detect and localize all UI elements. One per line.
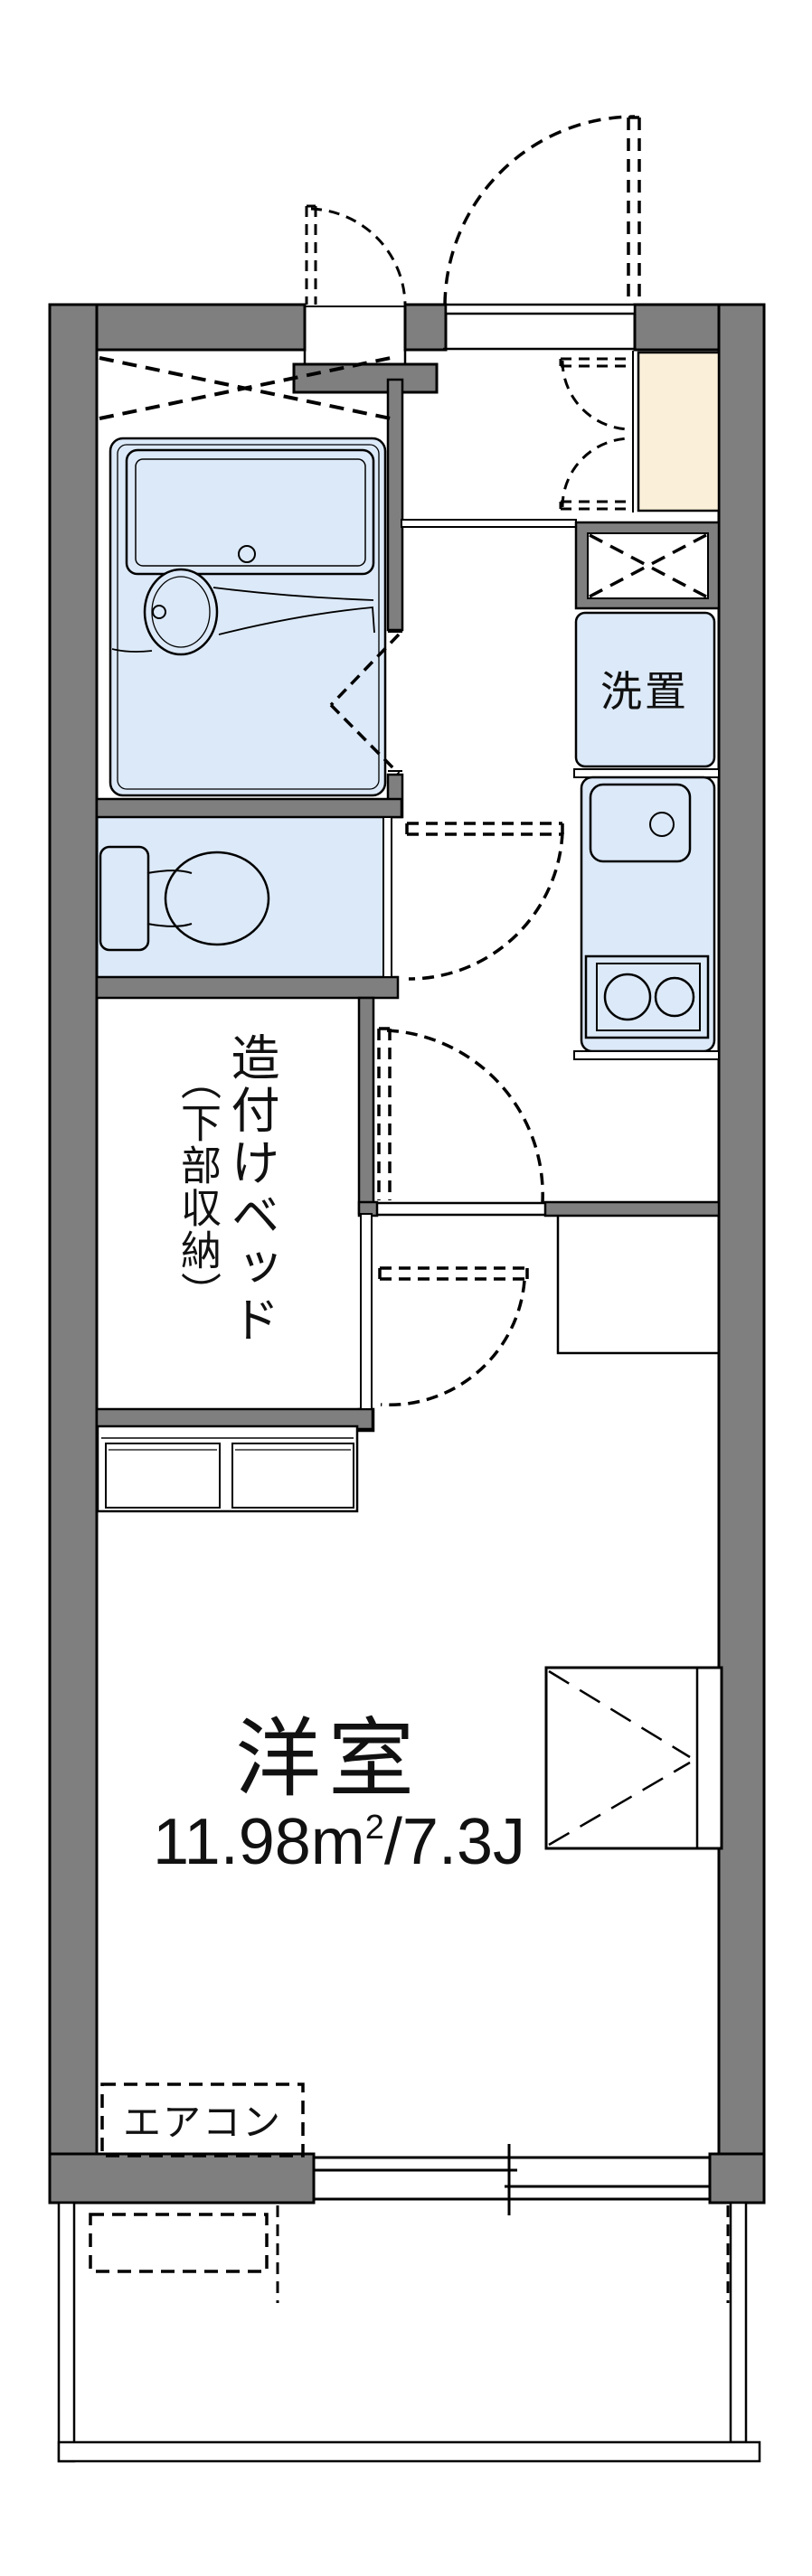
balcony-wall-right [731, 2203, 746, 2442]
meter-box-door [307, 206, 405, 305]
western-room-label: 洋室 [235, 1690, 421, 1814]
kitchen [574, 769, 719, 1059]
sliding-window [314, 2144, 710, 2215]
hanging-cupboard [576, 522, 719, 608]
western-room-area: 11.98m2/7.3J [153, 1805, 525, 1879]
toilet-bowl [165, 852, 269, 945]
partition-toilet-right [383, 817, 392, 977]
wall-bathroom-right [388, 380, 402, 630]
bathtub-drain [239, 546, 255, 562]
toilet [100, 847, 269, 950]
burner-left [605, 974, 650, 1020]
built-in-bed-sublabel: （下部収納） [177, 1059, 218, 1314]
washbasin [145, 569, 217, 654]
closet [546, 1668, 722, 1848]
wall-left [50, 305, 97, 2203]
kitchen-top-bar [574, 769, 719, 777]
balcony-wall-bottom [59, 2442, 760, 2461]
stove [586, 956, 708, 1038]
sink-drain [650, 813, 674, 836]
wall-bed-right [359, 998, 373, 1214]
kitchen-sink [590, 785, 690, 861]
wall-bottom-left [50, 2154, 314, 2203]
entrance-opening [446, 305, 635, 314]
partition-bed-right [361, 1214, 372, 1409]
entrance-door [445, 117, 639, 305]
wall-toilet-bottom [97, 977, 398, 998]
outdoor-unit-space [90, 2214, 267, 2271]
washbasin-faucet [153, 606, 165, 618]
genkan-step [401, 520, 576, 527]
bathtub [127, 450, 373, 574]
floor-plan-drawing [0, 0, 812, 2576]
floor-plan: 洗置 造付けベッド （下部収納） 洋室 11.98m2/7.3J エアコン [0, 0, 812, 2576]
under-bed-storage [98, 1426, 357, 1511]
washing-machine-label: 洗置 [600, 659, 689, 719]
toilet-tank [100, 847, 148, 950]
wall-bottom-right [710, 2154, 764, 2203]
built-in-bed-label: 造付けベッド [226, 1032, 275, 1347]
air-conditioner-label: エアコン [123, 2092, 282, 2148]
wall-hall-room-right [545, 1202, 719, 1216]
wall-right [719, 305, 764, 2203]
balcony-wall-left [59, 2203, 74, 2461]
wall-recess-block [294, 364, 437, 392]
balcony [59, 2203, 760, 2461]
burner-right [656, 978, 694, 1016]
wall-bath-toilet-divider [97, 799, 401, 817]
kitchen-bottom-bar [574, 1051, 719, 1059]
wall-top-pillar [405, 305, 446, 350]
